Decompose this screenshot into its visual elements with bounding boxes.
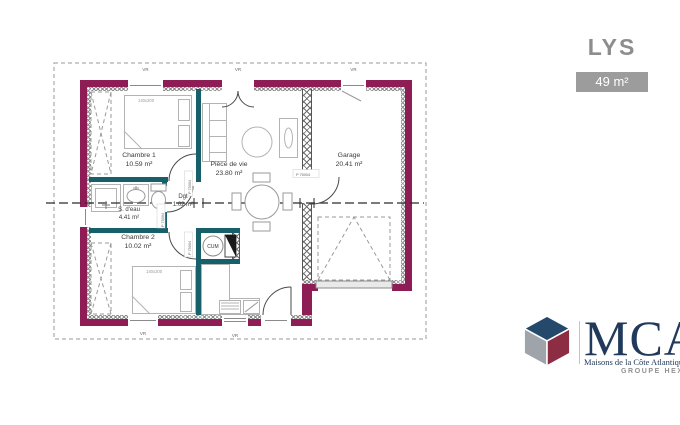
floor-plan-page: { "header": { "model_name": "LYS", "area… [0, 0, 680, 425]
closet-hatch [232, 233, 240, 259]
room-name: Chambre 2 [121, 234, 155, 243]
svg-text:VR: VR [142, 67, 149, 72]
svg-text:P 75004: P 75004 [188, 241, 192, 255]
room-name: Chambre 1 [122, 152, 156, 161]
room-area: 23.80 m² [210, 170, 247, 179]
sofa-cushion-line [209, 120, 227, 121]
chair [232, 193, 241, 210]
wardrobe-chambre1 [91, 92, 111, 174]
mca-logo: MCA Maisons de la Côte Atlantique GROUPE… [518, 310, 680, 390]
chambre2-door-opening [168, 228, 196, 233]
wall-right [405, 87, 412, 291]
bathroom-door-opening [162, 186, 167, 212]
window-kitchen-bay [222, 315, 248, 326]
room-label-garage: Garage 20.41 m² [336, 152, 363, 169]
area-badge: 49 m² [576, 72, 648, 92]
svg-text:VR: VR [232, 333, 239, 338]
tv-cabinet [279, 118, 298, 158]
logo-text: MCA [584, 313, 680, 363]
mca-cube-icon [520, 314, 574, 368]
kitchen-appliance [219, 300, 241, 314]
chambre2-door-arc [169, 232, 196, 259]
window-garage [341, 80, 366, 91]
svg-text:P 75004: P 75004 [188, 180, 192, 194]
french-door-arc [263, 287, 291, 315]
chair [253, 173, 270, 182]
room-name: Dgt [173, 194, 193, 202]
rug-circle [242, 127, 272, 157]
room-name: S. d'eau [118, 207, 140, 215]
room-label-piece-de-vie: Pièce de vie 23.80 m² [210, 161, 247, 178]
window-chambre2 [128, 315, 158, 326]
room-name: Garage [336, 152, 363, 161]
pillow [178, 99, 190, 121]
room-name: Pièce de vie [210, 161, 247, 170]
room-area: 4.41 m² [118, 215, 140, 223]
entrance-arc-right [238, 91, 254, 107]
room-label-dgt: Dgt 1.02 m² [173, 194, 193, 209]
kitchen-unit [243, 300, 260, 314]
french-door-opening [261, 315, 291, 326]
partition-bath-chambre2 [89, 228, 240, 233]
model-title: LYS [576, 34, 648, 61]
pillow [180, 292, 192, 312]
garage-ped-door-arc [312, 177, 339, 204]
svg-text:VR: VR [350, 67, 357, 72]
window-bathroom [80, 207, 91, 227]
room-area: 1.02 m² [173, 202, 193, 210]
hatch-right [401, 87, 405, 280]
room-area: 10.02 m² [121, 243, 155, 252]
garage-window-swing [342, 91, 361, 101]
chair [253, 222, 270, 231]
chambre1-door-opening [168, 177, 196, 182]
garage-door-opening [318, 280, 392, 291]
pillow [178, 125, 190, 147]
svg-text:VR: VR [235, 67, 242, 72]
window-chambre1 [128, 80, 163, 91]
chair [283, 193, 292, 210]
vanity-sink [123, 184, 149, 206]
garage-door-zone [318, 217, 390, 280]
shower-tray [95, 188, 117, 208]
partition-chambre1-living [196, 89, 201, 177]
wardrobe-chambre2 [91, 243, 111, 314]
water-heater-circle [203, 236, 223, 256]
logo-tagline: Maisons de la Côte Atlantique [584, 357, 680, 367]
room-label-chambre2: Chambre 2 10.02 m² [121, 234, 155, 251]
room-area: 20.41 m² [336, 161, 363, 170]
dining-table [245, 185, 279, 219]
room-label-sdeau: S. d'eau 4.41 m² [118, 207, 140, 222]
garage-ped-door-opening [302, 177, 312, 203]
logo-group-label: GROUPE HEXAOM [621, 368, 680, 375]
sofa [202, 103, 227, 162]
entrance-door-opening [222, 80, 254, 91]
sofa-cushion-line [209, 152, 227, 153]
room-label-chambre1: Chambre 1 10.59 m² [122, 152, 156, 169]
svg-text:VR: VR [140, 331, 147, 336]
logo-divider [579, 321, 580, 364]
pillow [180, 270, 192, 290]
sofa-back-line [209, 103, 210, 162]
wall-connector [302, 291, 312, 315]
room-area: 10.59 m² [122, 161, 156, 170]
sofa-cushion-line [209, 136, 227, 137]
water-heater-label: CUM [207, 244, 218, 250]
